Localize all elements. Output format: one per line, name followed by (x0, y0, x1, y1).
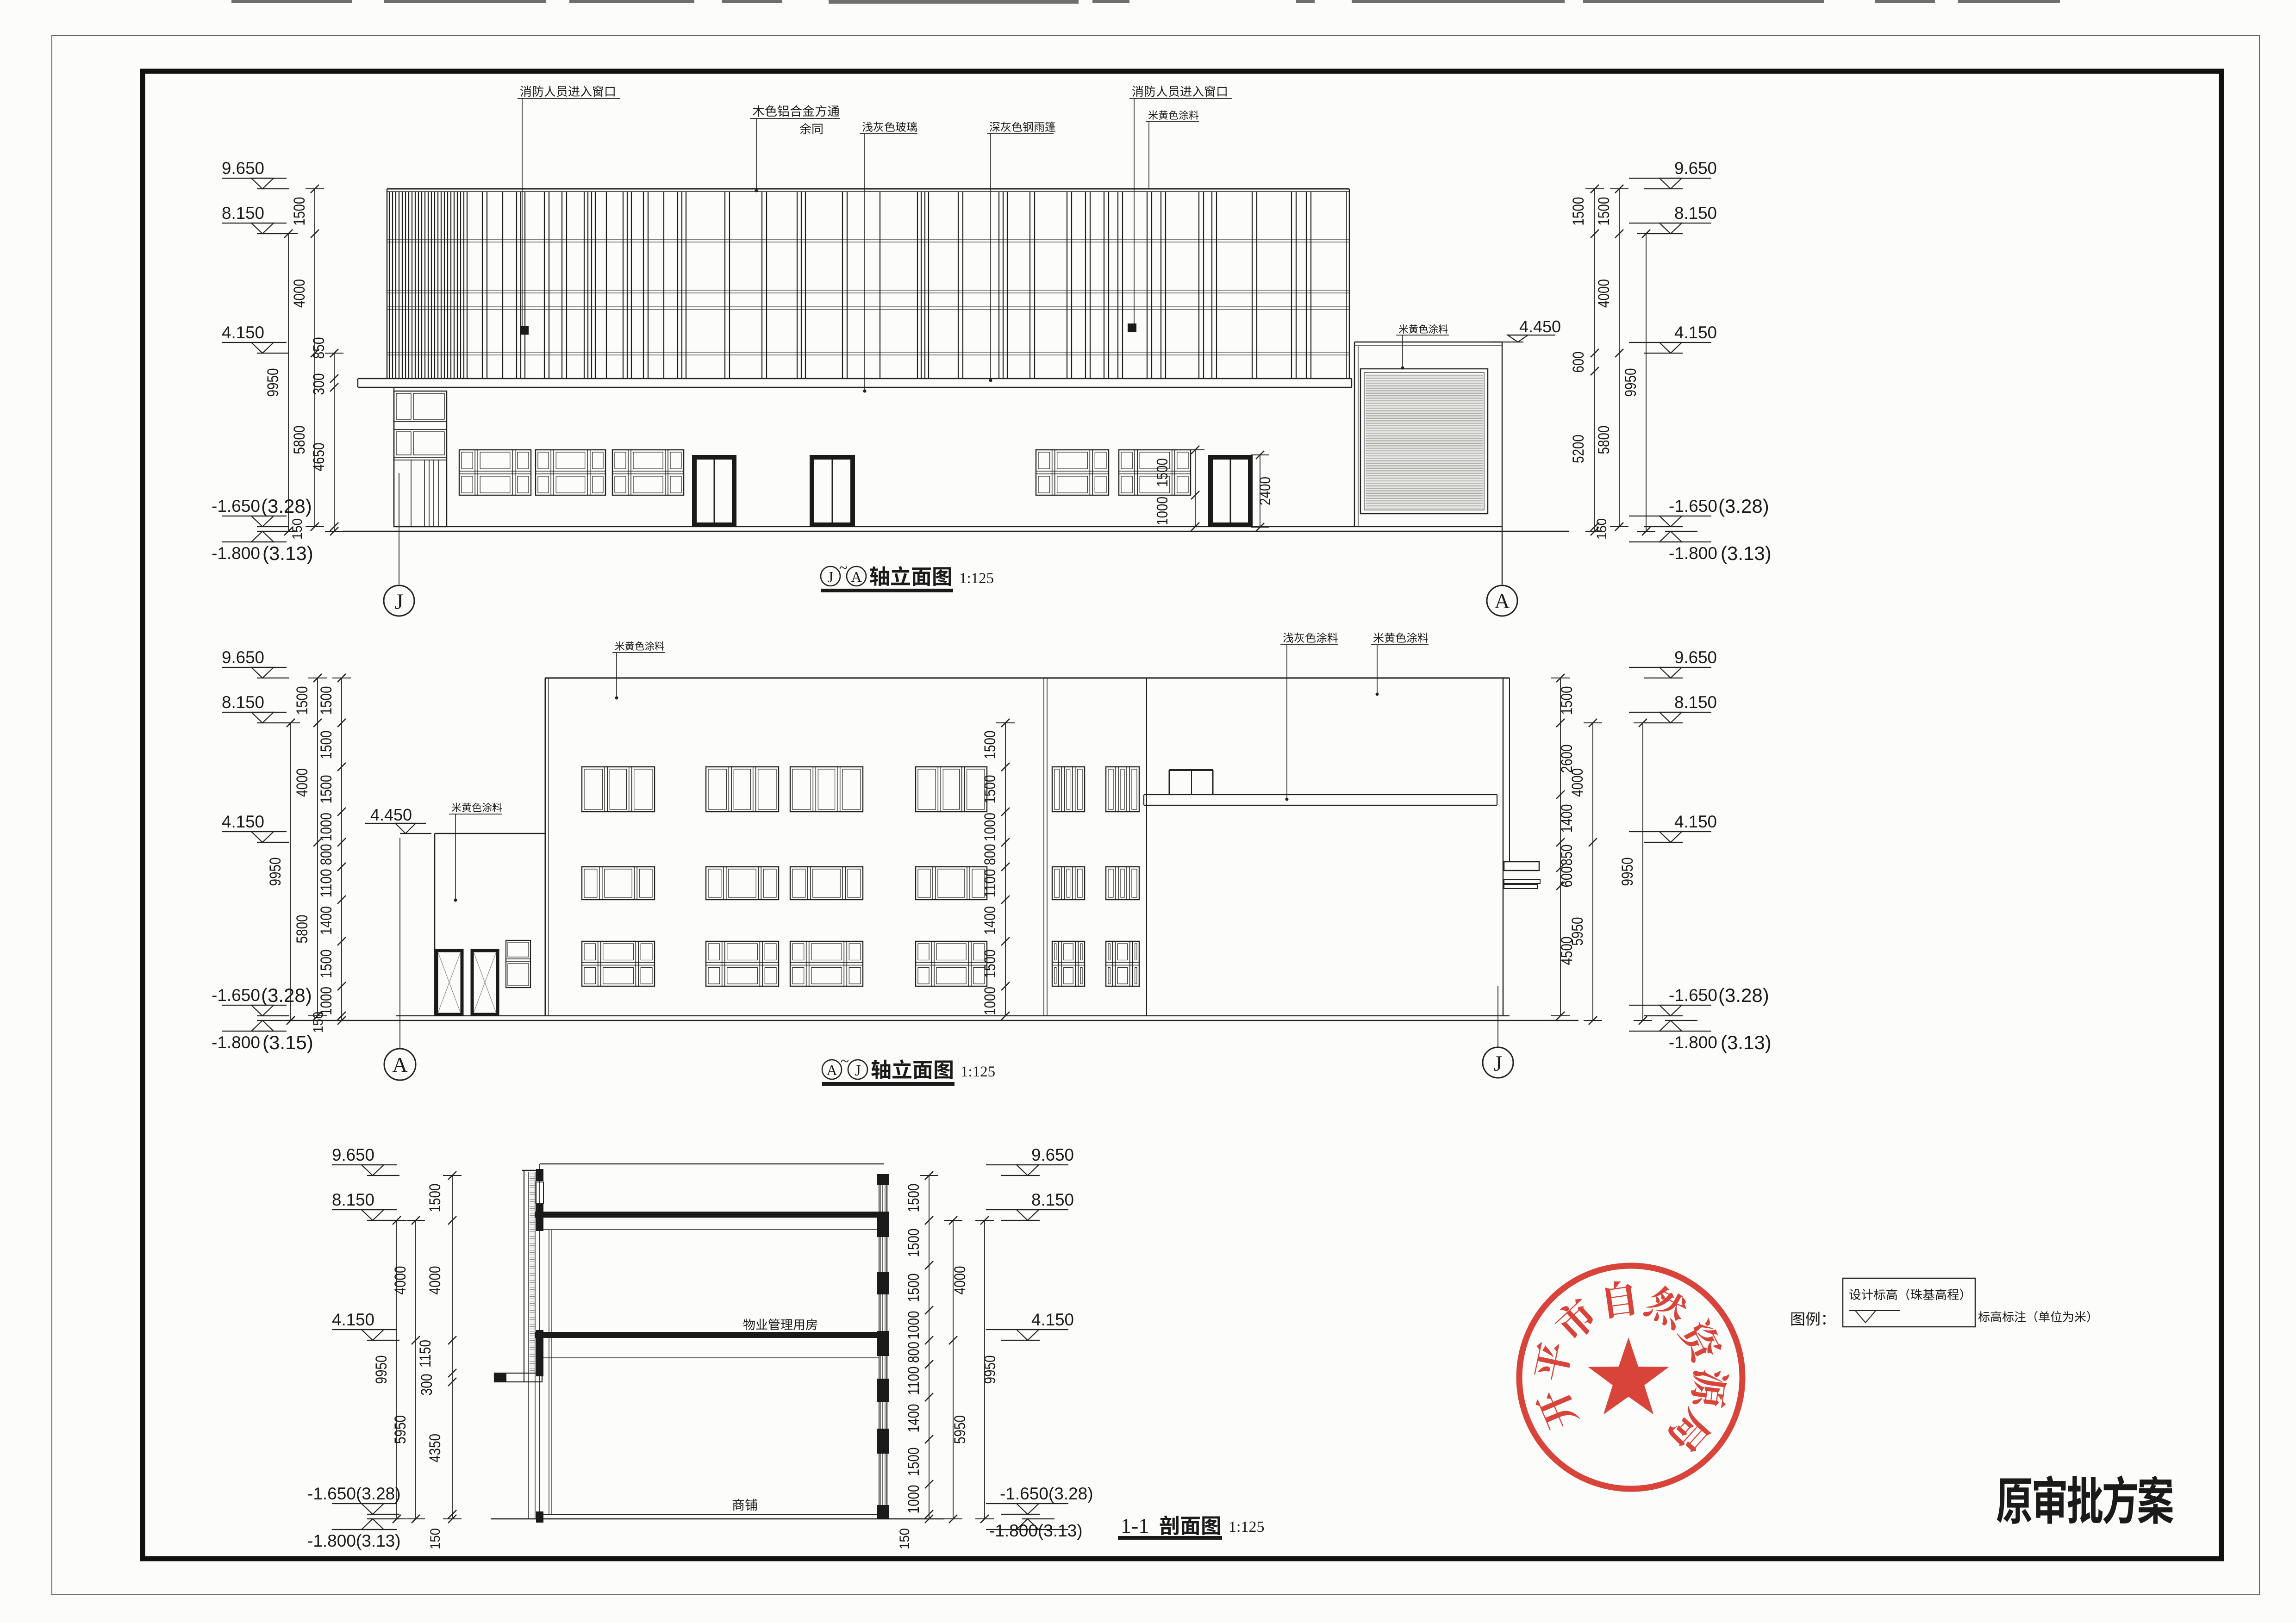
svg-text:850: 850 (310, 337, 328, 359)
svg-text:1500: 1500 (981, 731, 999, 759)
svg-text:850: 850 (1558, 845, 1576, 866)
svg-text:-1.650(3.28): -1.650(3.28) (1000, 1484, 1093, 1503)
svg-text:9.650: 9.650 (332, 1145, 374, 1164)
svg-text:-1.800: -1.800 (212, 544, 260, 563)
svg-text:4.450: 4.450 (370, 805, 412, 824)
svg-text:1500: 1500 (905, 1229, 923, 1257)
svg-text:1500: 1500 (291, 197, 308, 226)
svg-text:1500: 1500 (981, 950, 999, 978)
svg-text:1400: 1400 (981, 906, 999, 935)
svg-text:-1.650: -1.650 (1669, 497, 1717, 516)
svg-text:4350: 4350 (426, 1434, 444, 1462)
svg-text:5800: 5800 (293, 915, 311, 944)
svg-text:4000: 4000 (392, 1266, 409, 1295)
svg-text:-1.800: -1.800 (1669, 544, 1717, 563)
svg-text:-1.800(3.13): -1.800(3.13) (307, 1531, 401, 1550)
svg-text:1500: 1500 (293, 686, 311, 715)
svg-text:-1.650: -1.650 (212, 497, 260, 516)
svg-text:1500: 1500 (1558, 686, 1576, 715)
svg-text:5950: 5950 (951, 1415, 969, 1444)
svg-text:4.150: 4.150 (1674, 323, 1717, 342)
svg-text:-1.800: -1.800 (1669, 1033, 1717, 1052)
svg-text:1500: 1500 (1595, 197, 1613, 226)
svg-text:600: 600 (1570, 352, 1587, 373)
svg-text:1500: 1500 (1154, 458, 1171, 487)
svg-text:1100: 1100 (905, 1367, 923, 1395)
svg-text:J: J (827, 569, 833, 586)
svg-text:9950: 9950 (981, 1356, 999, 1384)
svg-text:1500: 1500 (318, 950, 335, 978)
svg-text:1100: 1100 (981, 869, 999, 898)
svg-text:150: 150 (1594, 518, 1610, 540)
svg-text:1:125: 1:125 (959, 570, 994, 587)
svg-text:9950: 9950 (1622, 368, 1640, 397)
svg-text:1:125: 1:125 (961, 1063, 995, 1080)
svg-text:8.150: 8.150 (332, 1190, 374, 1209)
svg-text:1500: 1500 (426, 1184, 444, 1213)
svg-text:8.150: 8.150 (222, 204, 264, 223)
svg-text:4000: 4000 (951, 1266, 969, 1295)
svg-text:5200: 5200 (1570, 435, 1587, 463)
svg-text:1500: 1500 (318, 731, 335, 759)
svg-text:A: A (851, 568, 861, 585)
svg-text:1500: 1500 (905, 1274, 923, 1302)
svg-text:4000: 4000 (426, 1266, 444, 1295)
svg-text:9950: 9950 (264, 368, 282, 397)
svg-text:1100: 1100 (318, 869, 335, 898)
svg-text:9.650: 9.650 (222, 159, 264, 178)
svg-text:8.150: 8.150 (222, 693, 264, 712)
svg-text:A: A (826, 1062, 837, 1078)
svg-text:8.150: 8.150 (1674, 204, 1717, 223)
svg-text:9.650: 9.650 (1674, 648, 1717, 667)
svg-text:4000: 4000 (291, 279, 308, 308)
svg-text:J: J (855, 1062, 861, 1079)
svg-text:4000: 4000 (1595, 279, 1613, 308)
svg-text:1400: 1400 (905, 1404, 923, 1433)
svg-text:1000: 1000 (905, 1311, 923, 1340)
svg-text:(3.13): (3.13) (1721, 542, 1772, 564)
svg-text:5800: 5800 (291, 426, 308, 454)
svg-text:1000: 1000 (318, 813, 335, 841)
svg-text:4.150: 4.150 (222, 812, 264, 831)
svg-text:1000: 1000 (905, 1485, 923, 1514)
svg-text:(3.13): (3.13) (1721, 1032, 1772, 1053)
svg-text:150: 150 (897, 1528, 912, 1549)
svg-text:1:125: 1:125 (1229, 1518, 1264, 1536)
svg-text:800: 800 (905, 1342, 923, 1363)
svg-text:1000: 1000 (318, 987, 335, 1015)
svg-text:4.450: 4.450 (1519, 317, 1561, 336)
svg-text:1500: 1500 (905, 1448, 923, 1476)
svg-text:4.150: 4.150 (222, 323, 264, 342)
svg-text:150: 150 (428, 1528, 443, 1549)
svg-text:J: J (1494, 1051, 1503, 1076)
svg-text:9950: 9950 (267, 858, 284, 886)
svg-text:4.150: 4.150 (1031, 1310, 1074, 1329)
svg-text:9.650: 9.650 (1674, 159, 1717, 178)
svg-text:4650: 4650 (310, 443, 328, 472)
svg-text:9.650: 9.650 (1031, 1145, 1074, 1164)
svg-text:1000: 1000 (981, 813, 999, 841)
svg-text:8.150: 8.150 (1031, 1190, 1074, 1209)
svg-text:5950: 5950 (392, 1415, 409, 1444)
svg-text:9950: 9950 (373, 1356, 390, 1384)
svg-text:600: 600 (1558, 866, 1576, 888)
svg-text:4.150: 4.150 (332, 1310, 374, 1329)
svg-text:150: 150 (311, 1012, 326, 1033)
svg-text:1400: 1400 (318, 906, 335, 935)
svg-text:-1.650: -1.650 (212, 986, 260, 1005)
svg-text:4000: 4000 (1569, 768, 1586, 797)
svg-text:1500: 1500 (318, 686, 335, 715)
svg-text:1500: 1500 (318, 775, 335, 804)
svg-text:(3.28): (3.28) (1718, 984, 1769, 1006)
svg-text:8.150: 8.150 (1674, 693, 1717, 712)
svg-text:(3.28): (3.28) (1718, 495, 1769, 517)
svg-text:(3.28): (3.28) (261, 984, 312, 1006)
svg-text:5950: 5950 (1569, 917, 1586, 946)
svg-text:1150: 1150 (417, 1340, 434, 1368)
svg-text:1400: 1400 (1558, 804, 1576, 833)
svg-text:800: 800 (981, 844, 999, 865)
svg-text:(3.13): (3.13) (262, 542, 313, 564)
svg-text:5800: 5800 (1595, 426, 1613, 454)
svg-text:9.650: 9.650 (222, 648, 264, 667)
svg-text:1000: 1000 (981, 987, 999, 1015)
svg-text:4.150: 4.150 (1674, 812, 1717, 831)
svg-text:-1.650(3.28): -1.650(3.28) (307, 1484, 401, 1503)
svg-text:1500: 1500 (905, 1184, 923, 1213)
svg-text:(3.28): (3.28) (261, 495, 312, 517)
svg-text:-1.800: -1.800 (212, 1033, 260, 1052)
svg-text:4000: 4000 (293, 768, 311, 797)
svg-text:300: 300 (418, 1374, 436, 1396)
svg-text:9950: 9950 (1619, 858, 1636, 886)
svg-text:1500: 1500 (981, 775, 999, 804)
svg-text:-1.800(3.13): -1.800(3.13) (989, 1521, 1083, 1540)
svg-text:2400: 2400 (1256, 477, 1273, 505)
svg-text:-1.650: -1.650 (1669, 986, 1717, 1005)
svg-text:1-1: 1-1 (1121, 1514, 1149, 1537)
svg-text:J: J (395, 590, 404, 614)
svg-text:150: 150 (290, 518, 305, 540)
svg-text:300: 300 (310, 373, 328, 395)
svg-text:800: 800 (318, 844, 335, 865)
svg-text:(3.15): (3.15) (262, 1032, 313, 1053)
svg-text:1500: 1500 (1570, 197, 1587, 226)
svg-text:1000: 1000 (1154, 497, 1171, 525)
svg-text:A: A (1494, 589, 1510, 613)
svg-text:A: A (392, 1053, 407, 1076)
